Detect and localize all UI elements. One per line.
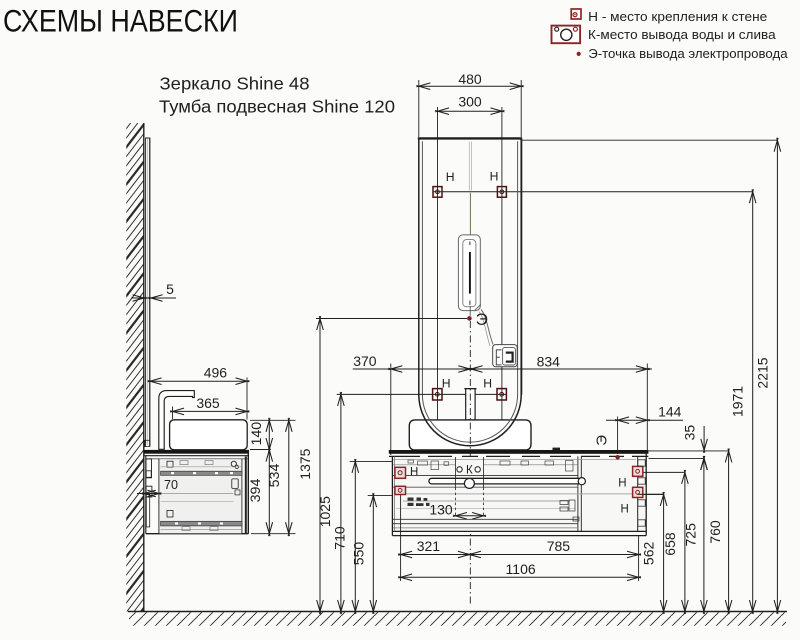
svg-text:Н: Н (483, 377, 492, 391)
svg-text:550: 550 (351, 542, 367, 566)
svg-text:Н: Н (490, 170, 499, 184)
svg-text:Н: Н (621, 504, 629, 516)
svg-text:760: 760 (707, 520, 723, 544)
svg-text:К-место вывода воды и слива: К-место вывода воды и слива (588, 27, 776, 42)
svg-text:Зеркало Shine 48: Зеркало Shine 48 (160, 74, 310, 94)
svg-text:35: 35 (682, 425, 698, 441)
svg-text:Тумба подвесная Shine 120: Тумба подвесная Shine 120 (159, 97, 395, 117)
svg-text:5: 5 (166, 281, 174, 297)
svg-text:300: 300 (458, 94, 482, 110)
svg-text:534: 534 (267, 464, 283, 488)
svg-text:321: 321 (417, 538, 441, 554)
svg-text:Э: Э (476, 310, 488, 329)
svg-text:725: 725 (682, 523, 698, 547)
svg-text:785: 785 (547, 538, 571, 554)
svg-text:140: 140 (249, 422, 265, 446)
svg-text:370: 370 (353, 353, 377, 369)
svg-text:1375: 1375 (297, 448, 313, 479)
svg-text:К: К (466, 465, 473, 477)
svg-text:365: 365 (196, 395, 220, 411)
svg-text:658: 658 (662, 532, 678, 556)
svg-text:1106: 1106 (506, 561, 536, 577)
svg-text:562: 562 (641, 542, 657, 566)
svg-text:144: 144 (658, 404, 682, 420)
svg-text:Н: Н (410, 467, 418, 479)
svg-text:Э-точка вывода электропровода: Э-точка вывода электропровода (588, 46, 788, 61)
svg-text:70: 70 (164, 478, 178, 492)
svg-text:710: 710 (332, 526, 348, 550)
svg-text:496: 496 (204, 365, 228, 381)
svg-text:СХЕМЫ НАВЕСКИ: СХЕМЫ НАВЕСКИ (3, 3, 238, 39)
svg-text:2215: 2215 (755, 357, 771, 388)
svg-text:394: 394 (248, 479, 264, 503)
svg-text:Э: Э (593, 435, 610, 446)
svg-text:Н: Н (446, 170, 455, 184)
svg-text:1025: 1025 (317, 496, 333, 527)
svg-text:Н: Н (618, 478, 626, 490)
svg-text:Н: Н (442, 377, 451, 391)
svg-text:480: 480 (458, 71, 482, 87)
svg-text:1971: 1971 (730, 386, 746, 417)
svg-text:130: 130 (429, 502, 453, 518)
svg-text:Н - место крепления к стене: Н - место крепления к стене (588, 9, 767, 24)
svg-text:834: 834 (537, 353, 561, 369)
